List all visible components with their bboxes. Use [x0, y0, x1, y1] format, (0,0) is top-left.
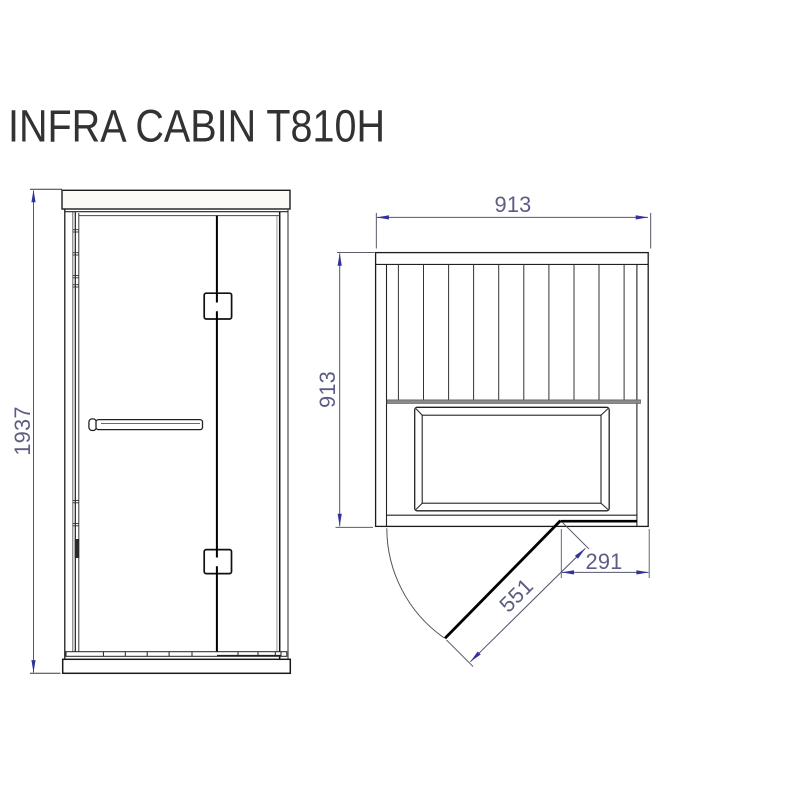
- svg-text:291: 291: [586, 549, 623, 574]
- svg-text:INFRA CABIN T810H: INFRA CABIN T810H: [8, 101, 385, 152]
- svg-text:1937: 1937: [10, 406, 35, 455]
- svg-text:913: 913: [495, 192, 532, 217]
- svg-text:913: 913: [315, 371, 340, 408]
